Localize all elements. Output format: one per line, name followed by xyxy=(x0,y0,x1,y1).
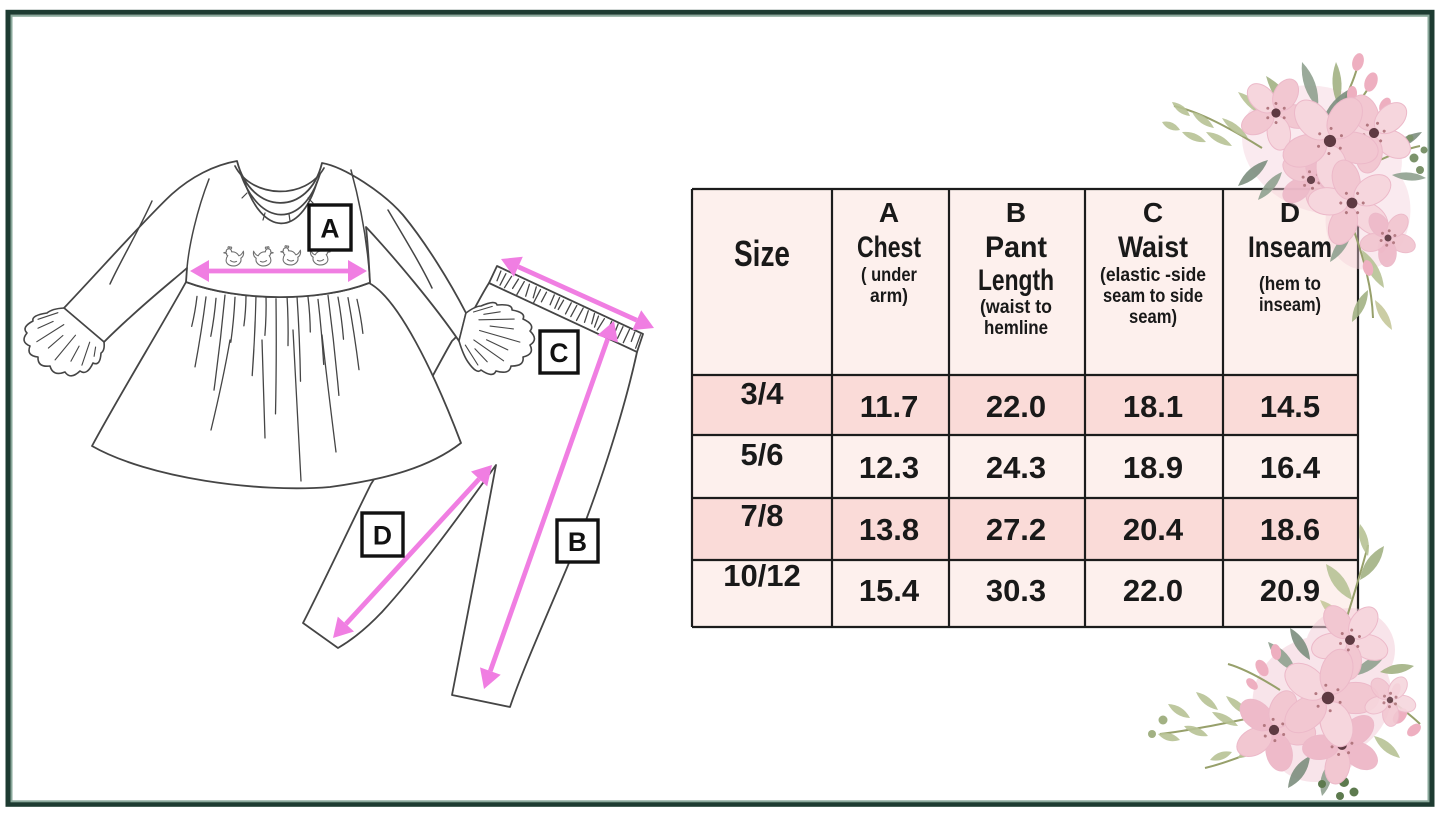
svg-text:(waist to: (waist to xyxy=(980,296,1052,318)
svg-text:18.1: 18.1 xyxy=(1123,389,1183,424)
svg-text:hemline: hemline xyxy=(984,317,1048,339)
svg-text:22.0: 22.0 xyxy=(986,389,1046,424)
svg-text:Waist: Waist xyxy=(1118,231,1188,264)
svg-text:18.6: 18.6 xyxy=(1260,512,1320,547)
svg-text:16.4: 16.4 xyxy=(1260,450,1321,485)
svg-text:( under: ( under xyxy=(861,264,917,286)
svg-text:inseam): inseam) xyxy=(1259,294,1321,316)
svg-text:seam): seam) xyxy=(1129,306,1177,328)
svg-text:18.9: 18.9 xyxy=(1123,450,1183,485)
svg-text:A: A xyxy=(879,197,899,228)
svg-text:A: A xyxy=(320,214,339,244)
svg-text:seam to side: seam to side xyxy=(1103,285,1203,307)
svg-text:Inseam: Inseam xyxy=(1248,231,1332,264)
svg-text:Chest: Chest xyxy=(857,231,921,264)
svg-text:7/8: 7/8 xyxy=(740,498,783,533)
svg-text:B: B xyxy=(1006,197,1026,228)
svg-text:20.9: 20.9 xyxy=(1260,573,1320,608)
svg-text:27.2: 27.2 xyxy=(986,512,1046,547)
svg-text:D: D xyxy=(373,521,392,551)
svg-text:14.5: 14.5 xyxy=(1260,389,1320,424)
svg-text:Pant: Pant xyxy=(985,231,1047,264)
svg-text:3/4: 3/4 xyxy=(740,376,784,411)
svg-text:(hem to: (hem to xyxy=(1259,273,1321,295)
svg-text:5/6: 5/6 xyxy=(740,437,783,472)
svg-text:C: C xyxy=(549,338,568,368)
svg-text:B: B xyxy=(568,527,587,557)
svg-text:24.3: 24.3 xyxy=(986,450,1046,485)
svg-text:20.4: 20.4 xyxy=(1123,512,1184,547)
svg-text:10/12: 10/12 xyxy=(723,558,801,593)
svg-text:30.3: 30.3 xyxy=(986,573,1046,608)
svg-text:Size: Size xyxy=(734,233,790,274)
svg-text:11.7: 11.7 xyxy=(860,389,919,424)
svg-text:15.4: 15.4 xyxy=(859,573,920,608)
svg-text:arm): arm) xyxy=(870,285,908,307)
svg-text:(elastic -side: (elastic -side xyxy=(1100,264,1206,286)
svg-text:Length: Length xyxy=(978,264,1054,297)
svg-text:C: C xyxy=(1143,197,1163,228)
svg-text:22.0: 22.0 xyxy=(1123,573,1183,608)
svg-text:13.8: 13.8 xyxy=(859,512,919,547)
svg-text:12.3: 12.3 xyxy=(859,450,919,485)
